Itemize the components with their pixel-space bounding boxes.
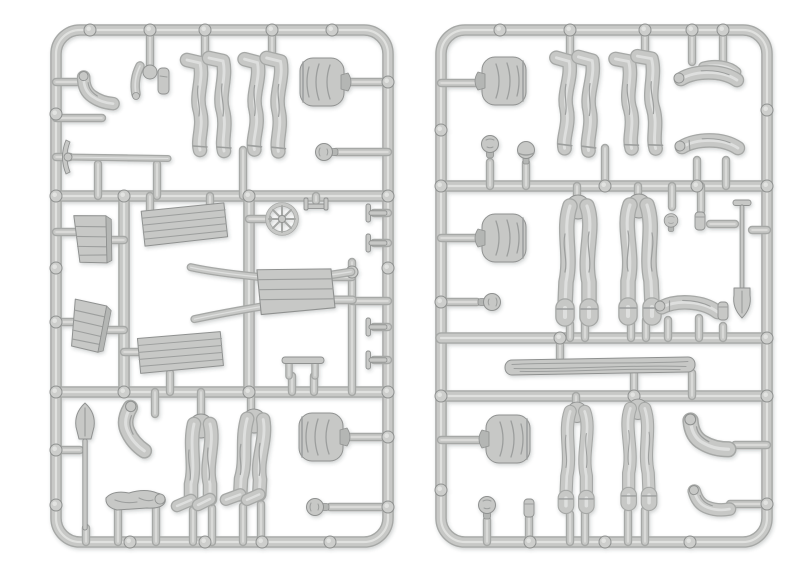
wheel-part [268,205,297,234]
arm-part [675,137,738,153]
plank-part [137,332,223,374]
head-part [307,499,330,516]
canteen-part [718,302,728,320]
crate-part [69,299,112,353]
legs-part [557,195,597,317]
head-part [479,497,496,520]
arm-part [688,477,729,520]
head-part [482,136,499,159]
parts-cluster [133,65,170,100]
bar-part [282,357,324,376]
torso-part [479,415,530,463]
head-part [664,214,678,232]
spade-part [733,200,751,318]
log-part [505,357,695,375]
shovel-part [76,403,95,530]
legs-part [241,57,288,151]
arms-part [674,64,738,85]
cap-part [524,499,534,517]
lying-figure-part [106,491,165,511]
sprue-photo [0,0,800,578]
head-part [316,144,339,161]
canteen-part [695,212,705,230]
product-photo [0,0,800,578]
legs-part [177,414,213,506]
legs-part [615,55,662,149]
arm-part [79,69,113,106]
legs-part [187,58,231,151]
torso-part [475,214,526,262]
legs-part [620,194,660,316]
legs-part [622,399,656,503]
legs-part [559,402,593,506]
wheelbarrow-part [191,259,354,319]
legs-part [226,408,267,502]
crate-part [74,212,115,265]
right-sprue [435,24,773,548]
torso-part [475,57,526,105]
left-sprue [50,24,394,548]
head-part [478,294,501,311]
arm-part [684,408,728,455]
torso-part [300,58,351,106]
helmet-head-part [518,142,535,165]
pickaxe-part [63,140,169,174]
torso-part [299,413,350,461]
arm-part [654,297,718,317]
legs-part [552,56,601,151]
